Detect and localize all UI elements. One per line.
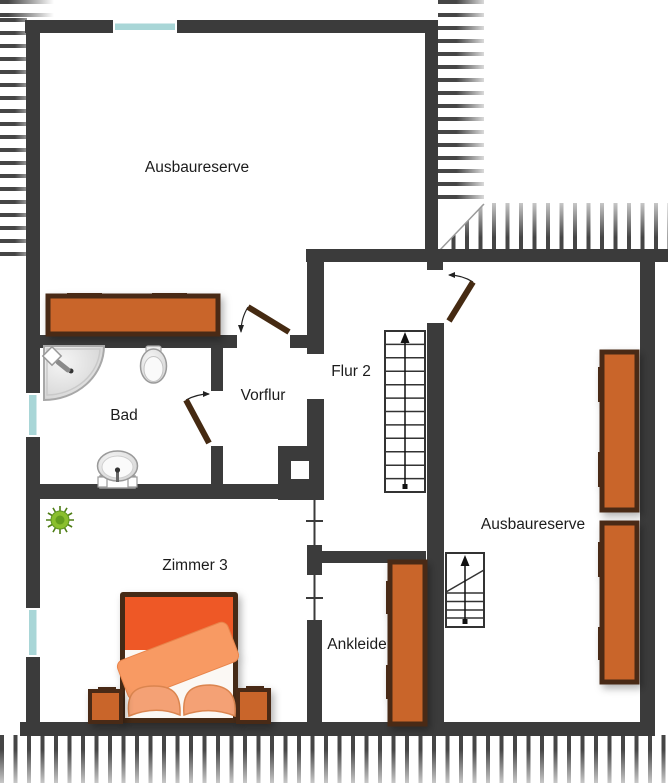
door-bad: [186, 391, 210, 443]
bed-pillow-right: [184, 685, 236, 716]
nightstand-right: [238, 686, 269, 722]
door-vorflur-north: [238, 307, 289, 333]
wall-segment: [211, 446, 223, 486]
handle-tab: [598, 627, 603, 660]
wall-segment: [640, 255, 655, 736]
stair-start-dot: [463, 619, 468, 624]
floorplan-svg: Ausbaureserve Bad Vorflur Flur 2 Ausbaur…: [0, 0, 668, 783]
wall-segment: [427, 323, 444, 736]
wardrobe-right-2: [598, 523, 637, 682]
door-arc-arrow: [238, 325, 244, 333]
toilet: [141, 346, 167, 383]
plant-symbol: [46, 506, 74, 534]
wall-segment: [427, 253, 443, 270]
chimney-flue: [291, 461, 309, 479]
wall-segment: [307, 249, 324, 354]
door-leaf: [449, 282, 473, 321]
wall-segment: [307, 545, 322, 575]
staircase-small: [446, 553, 484, 627]
floorplan-canvas: Ausbaureserve Bad Vorflur Flur 2 Ausbaur…: [0, 0, 668, 783]
wall-segment: [26, 484, 310, 499]
room-label-vorflur: Vorflur: [241, 387, 286, 404]
basin-drain: [115, 467, 120, 472]
room-label-flur-2: Flur 2: [331, 363, 371, 380]
door-arc-arrow: [203, 391, 210, 397]
wall-segment: [211, 335, 223, 391]
room-label-zimmer-3: Zimmer 3: [162, 557, 227, 574]
double-bed: [115, 592, 240, 723]
room-label-ankleide: Ankleide: [327, 636, 386, 653]
room-labels: Ausbaureserve Bad Vorflur Flur 2 Ausbaur…: [110, 159, 585, 653]
wall-segment: [25, 20, 432, 33]
window-zimmer3: [26, 608, 40, 657]
nightstand-left: [90, 687, 121, 722]
wall-segment: [290, 335, 307, 348]
washbasin: [98, 451, 138, 488]
handle-tab: [152, 293, 187, 298]
sideboard: [48, 293, 218, 334]
corner-shower: [43, 346, 104, 400]
door-ausbaureserve-right: [448, 272, 473, 321]
handle-tab: [598, 367, 603, 402]
door-arc-arrow: [448, 272, 455, 278]
room-label-ausbaureserve-right: Ausbaureserve: [481, 516, 585, 533]
wall-segment: [20, 722, 655, 736]
wardrobe-ankleide: [386, 562, 425, 724]
handle-tab: [386, 665, 391, 699]
handle-tab: [246, 686, 264, 691]
door-leaf: [248, 307, 289, 332]
handle-tab: [598, 542, 603, 577]
roof-hip-line: [438, 204, 484, 252]
staircase-main: [385, 331, 425, 492]
handle-tab: [598, 452, 603, 487]
door-leaf: [186, 400, 209, 443]
handle-tab: [67, 293, 102, 298]
wall-segment: [306, 249, 668, 262]
window-bad: [26, 393, 40, 437]
wardrobe-right-1: [598, 352, 637, 510]
chimney: [278, 446, 324, 500]
wall-segment: [425, 20, 438, 253]
handle-tab: [98, 687, 116, 692]
window-top: [113, 20, 177, 33]
room-label-ausbaureserve-top: Ausbaureserve: [145, 159, 249, 176]
wall-segment: [307, 620, 322, 736]
stair-start-dot: [403, 484, 408, 489]
handle-tab: [386, 581, 391, 614]
room-label-bad: Bad: [110, 407, 138, 424]
